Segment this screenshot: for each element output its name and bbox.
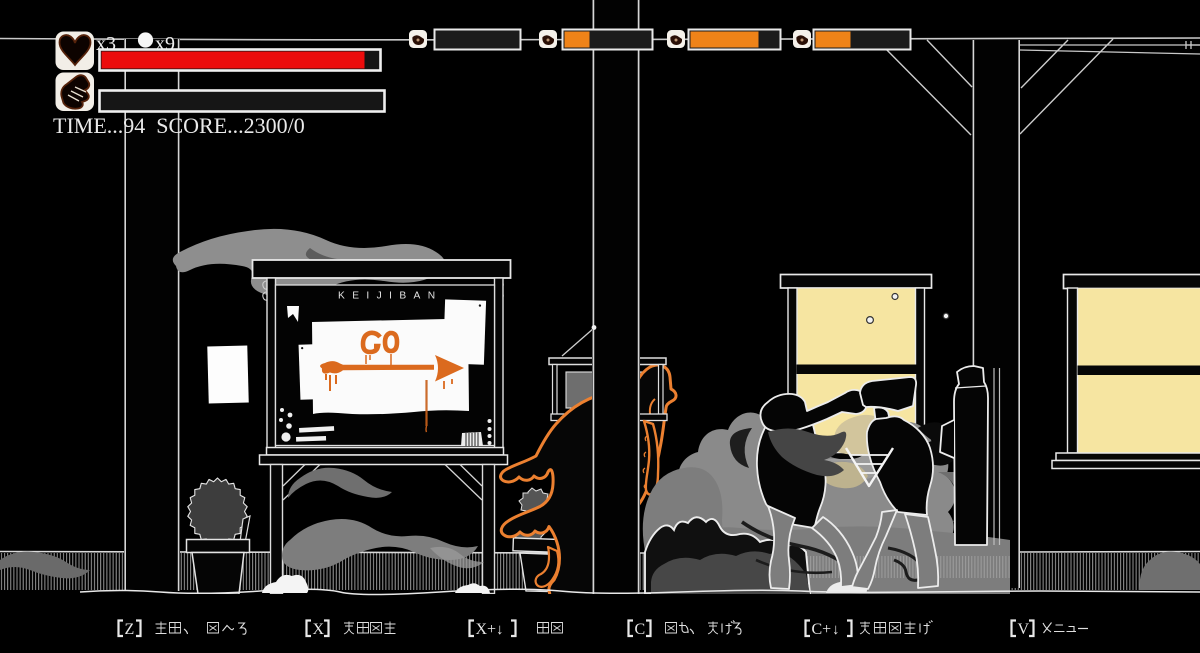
svg-text:C+: C+ [812, 621, 832, 638]
svg-text:↓: ↓ [496, 621, 504, 638]
svg-text:↓: ↓ [832, 621, 840, 638]
svg-text:C: C [635, 621, 646, 638]
svg-text:X+: X+ [476, 621, 497, 638]
svg-text:TIME...94 SCORE...2300/0: TIME...94 SCORE...2300/0 [53, 113, 305, 138]
svg-text:KEIJIBAN: KEIJIBAN [338, 291, 443, 302]
svg-text:X: X [313, 621, 325, 638]
svg-text:Z: Z [125, 621, 135, 638]
svg-text:V: V [1018, 621, 1030, 638]
